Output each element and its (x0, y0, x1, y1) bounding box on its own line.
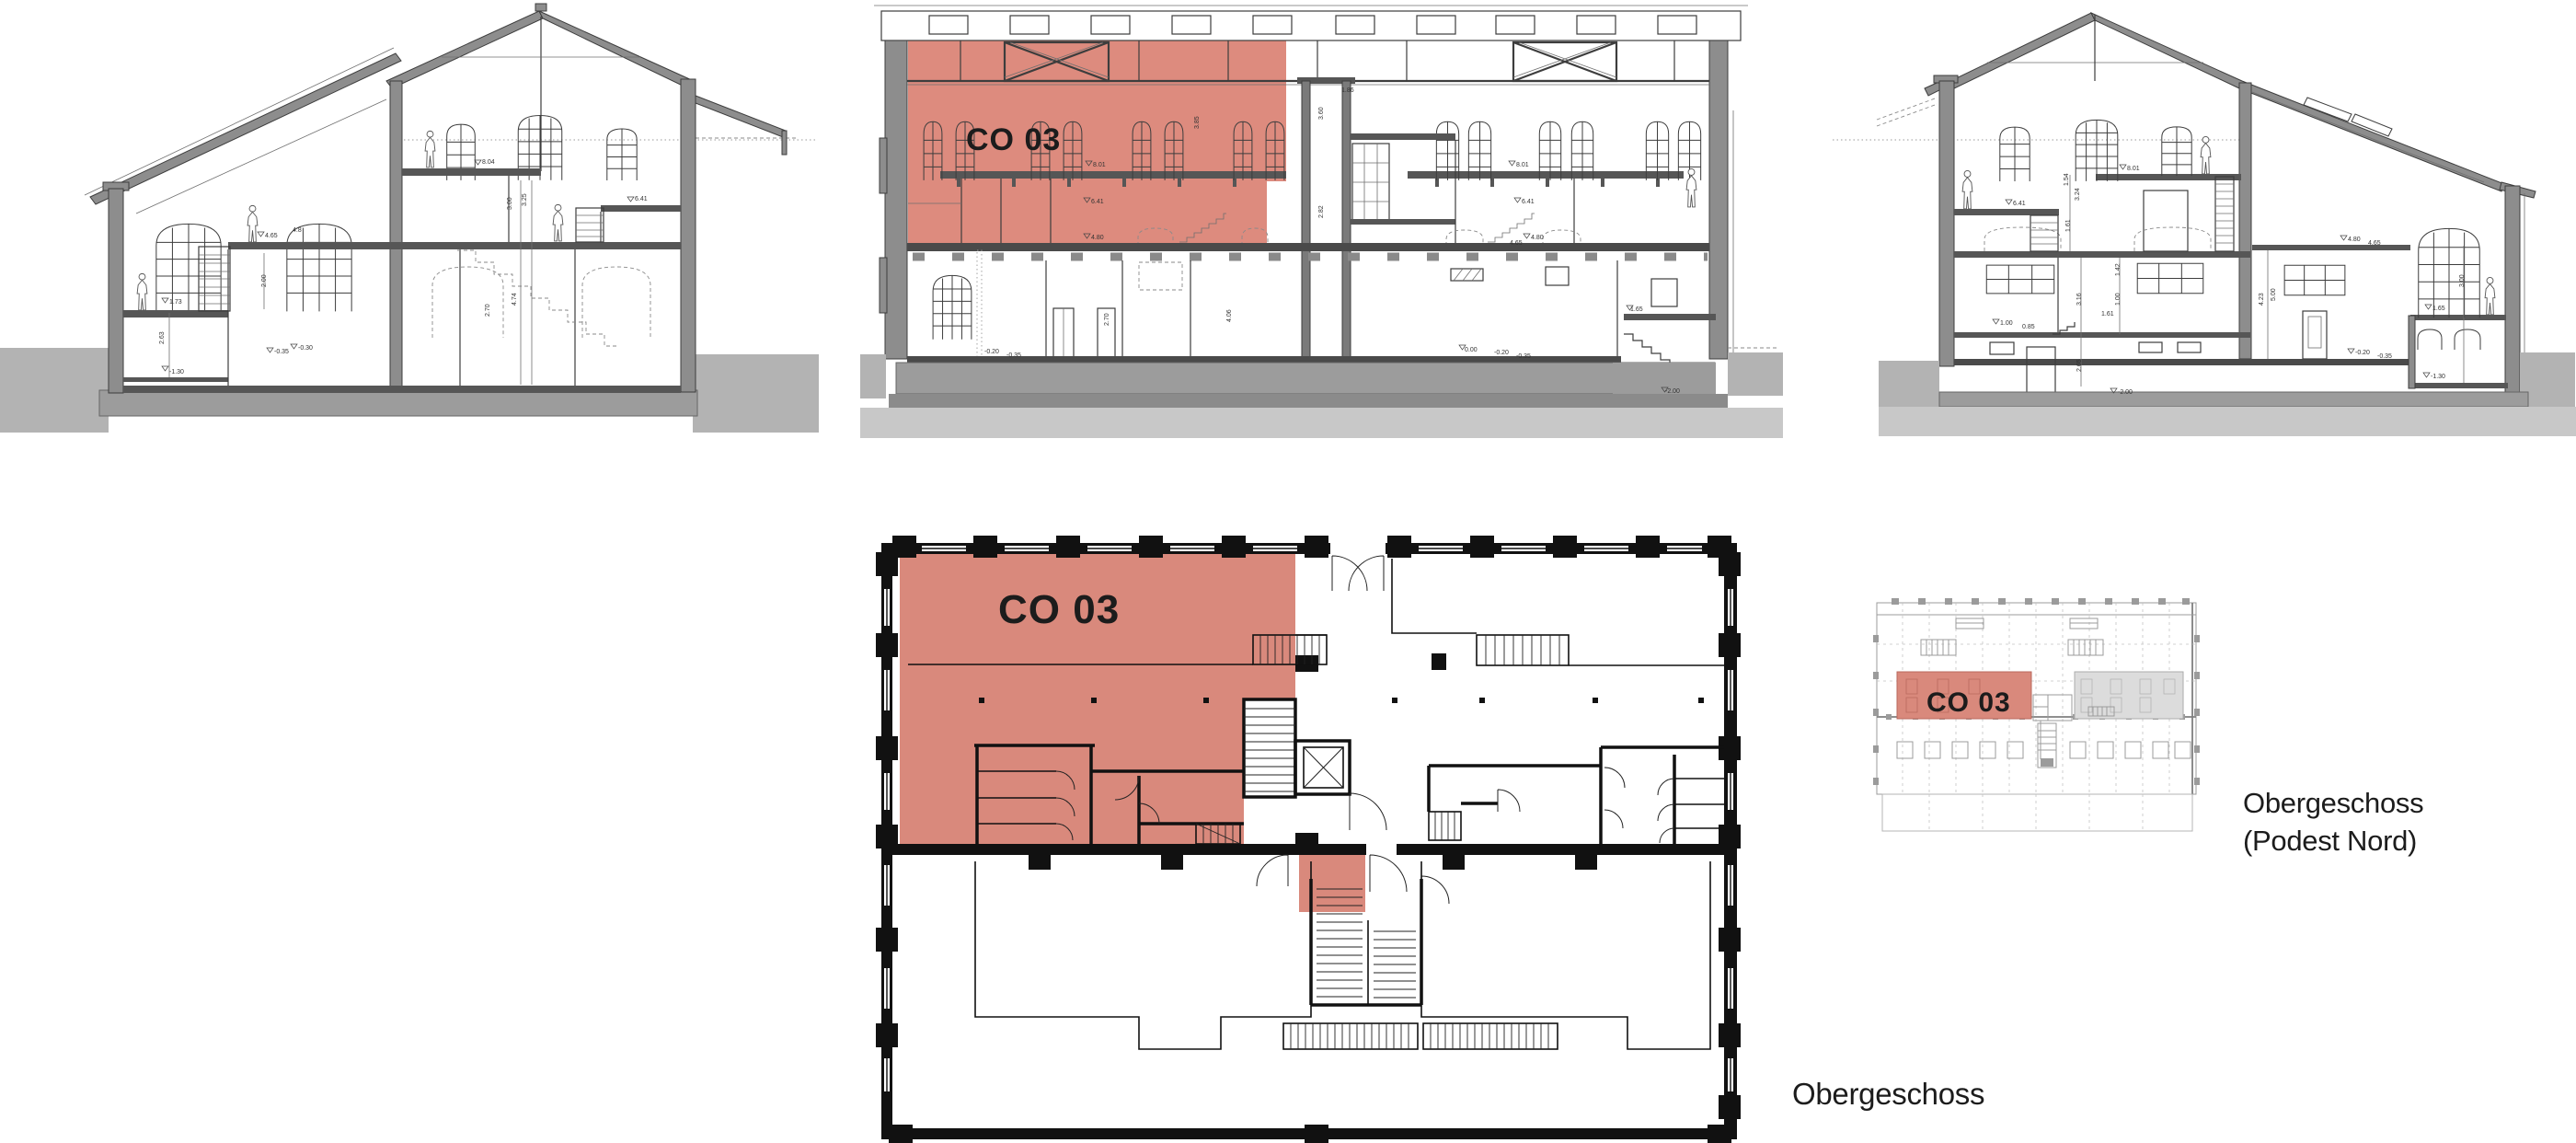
dim-text: -0.20 (1494, 350, 1509, 356)
drawing-sheet: 8.04 6.41 4.65 4.8 1.73 -1.30 -0.35 -0.3… (0, 0, 2576, 1143)
dim-text: 2.00 (261, 274, 268, 287)
caption-obergeschoss: Obergeschoss (1792, 1077, 1984, 1112)
dim-text: -0.30 (298, 345, 313, 352)
dim-text: 8.01 (1093, 162, 1106, 168)
core-stair-elevator (1244, 699, 1386, 830)
clerestory-band (874, 6, 1748, 40)
upper-floor-content (1921, 618, 2103, 655)
dim-text: 1.73 (169, 299, 182, 306)
unit-label-plan: CO 03 (998, 587, 1120, 632)
dim-text: 2.63 (159, 331, 166, 344)
dim-text: 3.25 (522, 193, 528, 206)
terrace-band (1882, 794, 2192, 831)
dim-text: 4.65 (2368, 240, 2381, 247)
dim-text: 4.65 (1510, 240, 1523, 247)
dim-text: 8.04 (482, 159, 495, 166)
dim-text: 1.61 (2065, 219, 2072, 232)
dim-text: 4.23 (2259, 293, 2265, 306)
floor-plan-podest-nord: CO 03 (1868, 594, 2213, 868)
dim-text: 1.65 (1630, 306, 1643, 313)
dim-text: -2.00 (1665, 388, 1680, 395)
dim-text: 3.00 (507, 197, 513, 210)
dim-text: 1.54 (2064, 173, 2070, 186)
dim-text: 5.00 (2271, 288, 2277, 301)
dim-text: 2.70 (1104, 313, 1110, 326)
human-figures (1686, 168, 1696, 206)
dim-text: 1.00 (2115, 293, 2122, 306)
dim-text: 1.61 (2101, 311, 2114, 317)
x-brace (1513, 42, 1616, 81)
section-east-drawing: 8.01 6.41 4.80 4.65 1.54 3.24 1.61 3.16 … (1831, 0, 2576, 451)
dim-text: 4.80 (1091, 235, 1104, 241)
ground-floor (933, 250, 1716, 373)
upper-right-room (1392, 559, 1724, 665)
dim-text: -2.00 (2118, 389, 2133, 396)
dim-text: 1.00 (2000, 320, 2013, 327)
dim-text: 1.65 (2432, 306, 2445, 312)
walls (103, 79, 787, 393)
dim-text: 3.00 (2459, 274, 2466, 287)
human-figures (1962, 136, 2495, 315)
dim-text: -0.20 (2355, 350, 2370, 356)
dim-text: 8.01 (1516, 162, 1529, 168)
ground (860, 352, 1783, 438)
dim-text: 6.41 (2013, 201, 2026, 207)
dim-text: -0.35 (1006, 352, 1021, 359)
human-figures (137, 131, 563, 310)
elevator-shaft (1297, 77, 1355, 398)
section-long-drawing: CO 03 8.01 8.01 6.41 6.41 4.80 4.80 4.65… (858, 0, 1783, 460)
clerestory-windows (929, 16, 1696, 34)
section-west-drawing: 8.04 6.41 4.65 4.8 1.73 -1.30 -0.35 -0.3… (0, 0, 819, 460)
main-floor-slab (907, 243, 1709, 257)
dim-text: 4.80 (1531, 235, 1544, 241)
services-right (1429, 747, 1724, 849)
dim-text: -0.20 (984, 349, 999, 355)
dim-text: 2.65 (2076, 359, 2083, 372)
unit-label-section: CO 03 (966, 122, 1061, 157)
dim-text: 4.74 (512, 293, 518, 306)
dim-text: 3.16 (2076, 293, 2083, 306)
dim-text: 3.60 (1318, 107, 1325, 120)
roof (1925, 13, 2536, 198)
dim-text: 4.80 (2348, 237, 2361, 243)
dim-text: 2.82 (1318, 205, 1325, 218)
entrance-double-door (1332, 556, 1384, 591)
caption-podest-line2: (Podest Nord) (2243, 822, 2423, 860)
caption-podest-line1: Obergeschoss (2243, 784, 2423, 822)
dim-text: 3.85 (1194, 116, 1201, 129)
dim-text: 0.00 (1465, 347, 1478, 353)
dim-text: 2.70 (485, 304, 491, 317)
floor-plan-main: CO 03 (874, 529, 1743, 1143)
dim-text: 1.86 (1341, 87, 1354, 94)
dim-text: 6.41 (635, 196, 648, 202)
core (2033, 695, 2072, 768)
highlight-stub (1299, 855, 1365, 912)
dim-text: 8.01 (2127, 166, 2140, 172)
caption-podest-nord: Obergeschoss (Podest Nord) (2243, 784, 2423, 860)
dim-text: 4.65 (265, 233, 278, 239)
dim-text: -0.35 (2377, 353, 2392, 360)
dim-text: -0.35 (274, 349, 289, 355)
dim-text: 6.41 (1522, 199, 1535, 205)
lobby-door (1350, 793, 1386, 830)
unit-label-plan-small: CO 03 (1926, 687, 2011, 718)
dim-text: -1.30 (169, 369, 184, 375)
dim-text: 1.42 (2115, 263, 2122, 276)
dim-text: 0.85 (2022, 324, 2035, 330)
dim-text: 3.24 (2075, 188, 2081, 201)
entrance-opening (1330, 541, 1386, 556)
dimension-labels: 8.04 6.41 4.65 4.8 1.73 -1.30 -0.35 -0.3… (159, 159, 648, 375)
dim-text: -0.35 (1516, 353, 1531, 360)
interior (1990, 215, 2480, 395)
dim-text: 6.41 (1091, 199, 1104, 205)
dim-text: 4.8 (293, 227, 302, 234)
dim-text: 4.06 (1226, 309, 1233, 322)
dim-text: -1.30 (2431, 374, 2445, 380)
gray-area (2075, 672, 2183, 719)
